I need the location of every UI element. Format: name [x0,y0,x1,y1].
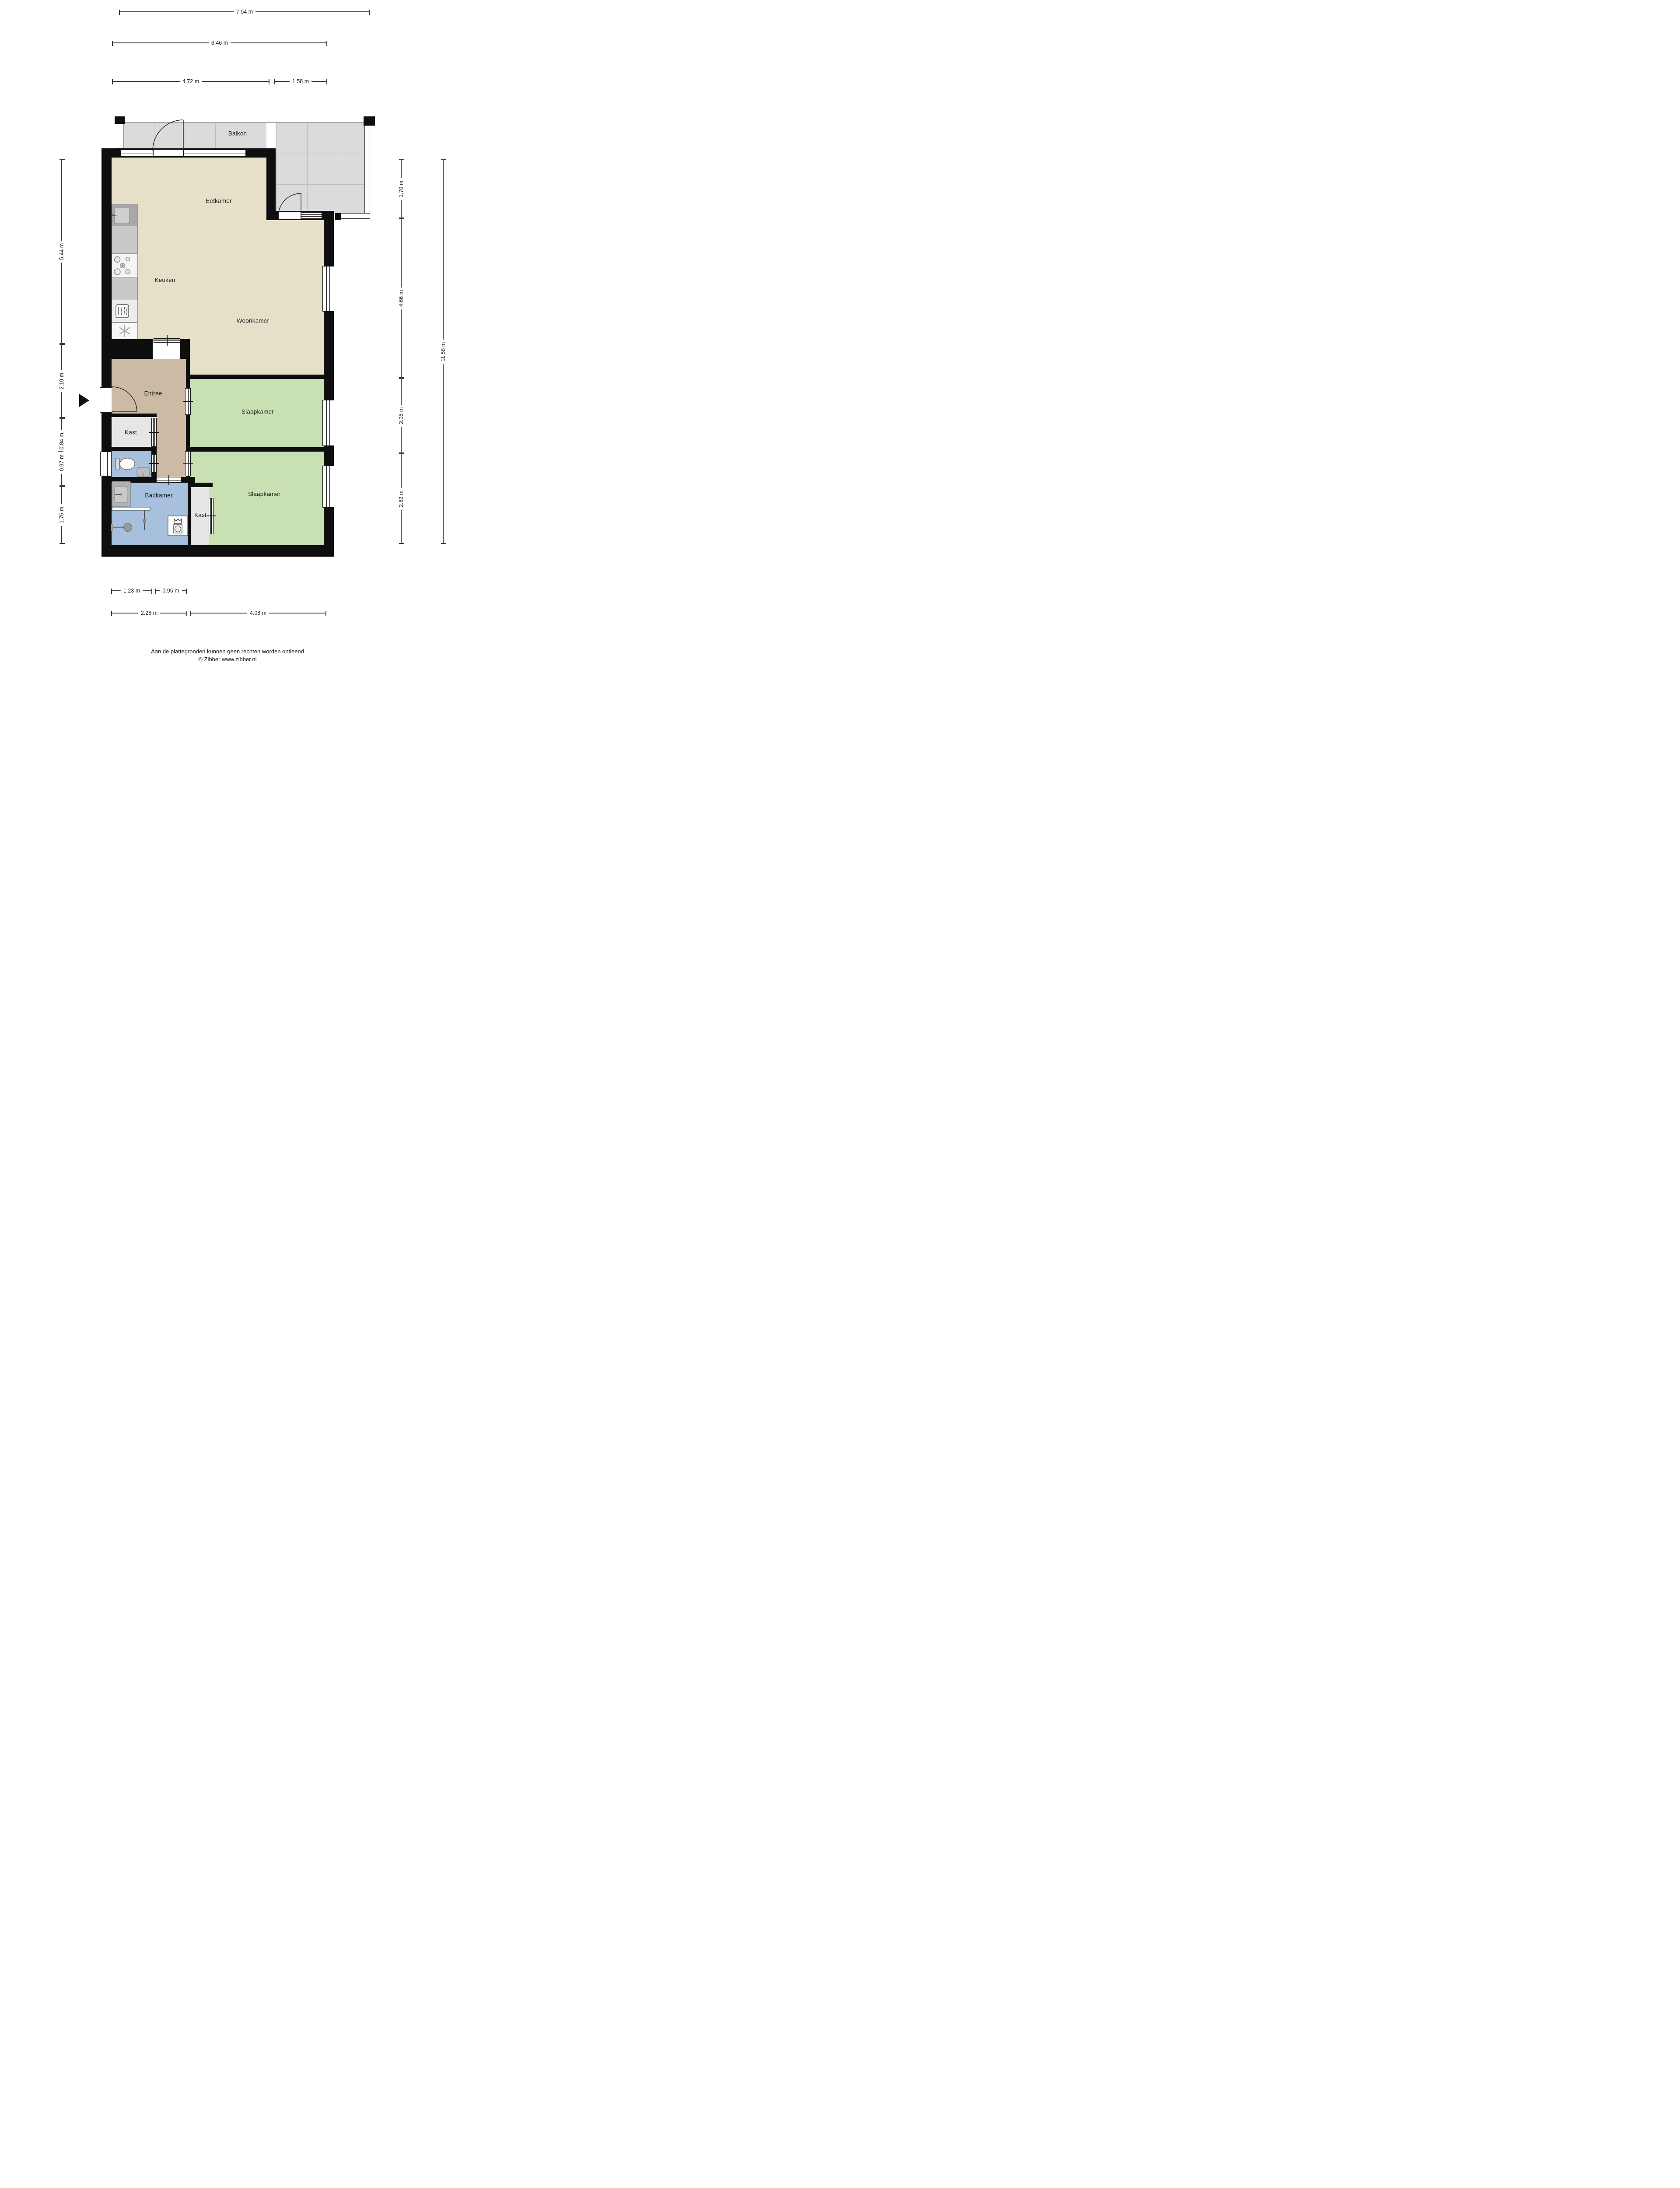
floorplan-canvas: Balkon Eetkamer Keuken Woonkamer Entree … [0,0,504,672]
window-dining-balcony-right [183,150,246,156]
fridge-panel [112,323,138,339]
balcony-door1-opening [153,150,183,156]
window-bedroom2-right [322,466,334,508]
door-bathroom-tick [168,475,169,485]
door-closet-hall-tick [149,432,159,433]
footer-copyright: © Zibber www.zibber.nl [0,656,455,663]
entrance-arrow-icon [79,394,89,407]
balcony-railing-right [364,123,370,217]
dim-left-2: 2.19 m [61,344,62,418]
passage-tick [167,335,168,346]
footer-disclaimer: Aan de plattegronden kunnen geen rechten… [0,648,455,655]
dim-right-1: 1.70 m [401,159,402,218]
dim-right-4: 2.82 m [401,453,402,544]
dim-top-right-seg: 1.58 m [274,81,327,82]
window-dining-balcony-left [121,150,153,156]
balcony-door2-opening [278,212,301,219]
dim-bottom-2: 0.95 m [155,590,187,591]
wall-closet2-top [188,483,213,487]
door-closet-bedroom2-tick [206,515,216,516]
window-living-balcony [301,212,322,219]
balcony-door2-jamb-left [278,211,279,220]
stove-panel [112,253,138,277]
balcony-door1-jamb-left [153,148,154,158]
room-label-balkon: Balkon [228,130,247,137]
dim-right-2: 4.66 m [401,218,402,378]
wall-eetkamer-balcony [266,148,276,220]
wall-stub-toilet-door [151,473,157,477]
oven-panel [112,300,138,323]
wall-closet-hall-bottom [101,447,157,451]
room-label-woonkamer: Woonkamer [237,318,269,324]
entrance-door-opening [101,387,112,412]
room-label-keuken: Keuken [155,277,175,284]
room-label-kast-hal: Kast [125,429,137,436]
room-label-slaapkamer1: Slaapkamer [241,409,274,415]
balcony-corner-block-bottom [335,213,341,220]
window-bedroom1-right [322,400,334,446]
entrance-door-jamb-bottom [100,412,112,413]
dim-bottom-4: 4.08 m [190,613,326,614]
balcony-door2-jamb-right [301,211,301,220]
wall-bath-closet2 [188,477,191,545]
bathroom-floor [112,481,188,545]
dim-left-3: 0.97 m - 0.84 m [61,418,62,486]
room-label-entree: Entree [144,390,162,397]
dim-left-1: 5.44 m [61,159,62,344]
wall-closet-hall-top [101,414,157,417]
living-floor-lower [190,339,324,375]
balcony-door1-jamb-right [183,148,184,158]
room-label-slaapkamer2: Slaapkamer [248,491,280,498]
window-living-right [322,266,334,312]
room-label-kast-slaapkamer: Kast [194,512,206,519]
dim-bottom-3: 2.28 m [111,613,187,614]
room-label-eetkamer: Eetkamer [206,198,231,204]
balcony-corner-block-right [364,116,375,126]
dim-top-left-seg: 4.72 m [112,81,269,82]
entrance-door-jamb-top [100,387,112,388]
toilet-floor [112,451,152,477]
room-label-badkamer: Badkamer [145,492,172,499]
dim-bottom-1: 1.23 m [111,590,152,591]
door-toilet-tick [149,463,159,464]
dim-left-3-midtick [58,451,63,452]
wall-bedroom1-bedroom2 [186,447,324,452]
dim-top-total: 7.54 m [119,11,370,12]
hall-floor-lower [157,414,186,477]
entree-floor [112,359,186,414]
window-toilet-left [100,452,112,476]
balcony-floor-right [276,123,365,213]
balcony-railing-left [117,123,123,148]
dim-top-inner: 6.46 m [112,42,327,43]
balcony-railing-top [117,117,370,123]
wall-stub-closet-doors [151,447,157,454]
dim-right-3: 2.05 m [401,378,402,453]
door-bedroom2-tick [183,463,193,464]
wall-passage-right-stub [180,339,190,359]
wall-kitchen-entree [101,339,153,359]
wall-living-bedroom1 [189,375,324,379]
dim-left-4: 1.76 m [61,486,62,544]
balcony-corner-block-left [115,116,125,124]
door-bedroom1-tick [183,401,193,402]
dim-right-total: 11.58 m [443,159,444,544]
wall-bottom [101,545,334,557]
kitchen-sink-unit [112,204,138,226]
